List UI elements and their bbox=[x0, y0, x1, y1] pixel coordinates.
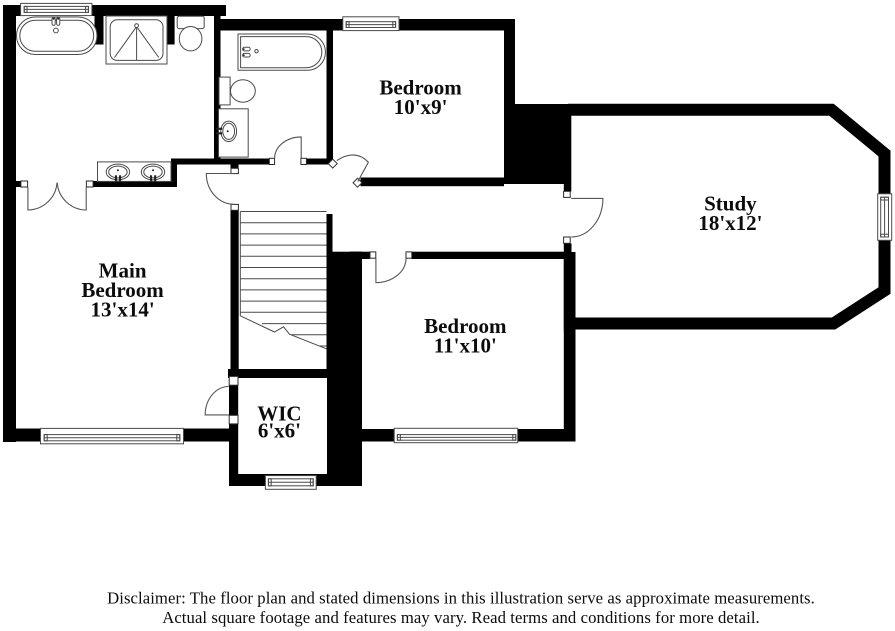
svg-text:13'x14': 13'x14' bbox=[91, 298, 155, 322]
svg-text:10'x9': 10'x9' bbox=[394, 95, 448, 119]
svg-text:11'x10': 11'x10' bbox=[434, 333, 497, 357]
svg-text:6'x6': 6'x6' bbox=[258, 419, 301, 443]
svg-text:18'x12': 18'x12' bbox=[698, 211, 762, 235]
svg-text:Disclaimer: The floor plan and: Disclaimer: The floor plan and stated di… bbox=[107, 589, 815, 608]
svg-text:Actual square footage and feat: Actual square footage and features may v… bbox=[162, 608, 760, 627]
